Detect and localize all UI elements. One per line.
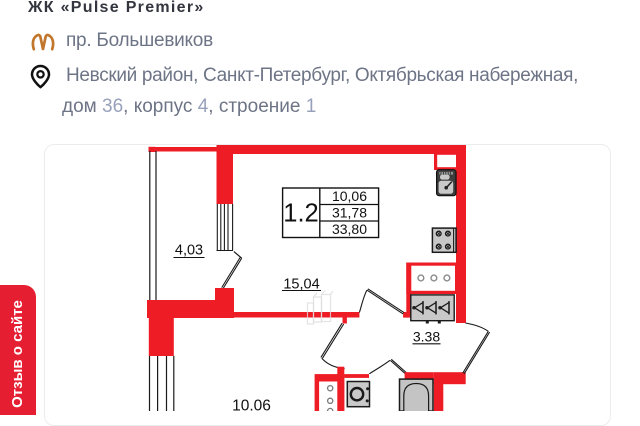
svg-text:3.38: 3.38 xyxy=(413,329,440,345)
svg-text:10,06: 10,06 xyxy=(332,188,367,204)
svg-text:10.06: 10.06 xyxy=(232,398,271,412)
svg-text:33,80: 33,80 xyxy=(332,221,367,237)
svg-text:4,03: 4,03 xyxy=(175,243,203,259)
svg-text:1.2: 1.2 xyxy=(283,200,318,228)
svg-text:31,78: 31,78 xyxy=(332,205,367,221)
